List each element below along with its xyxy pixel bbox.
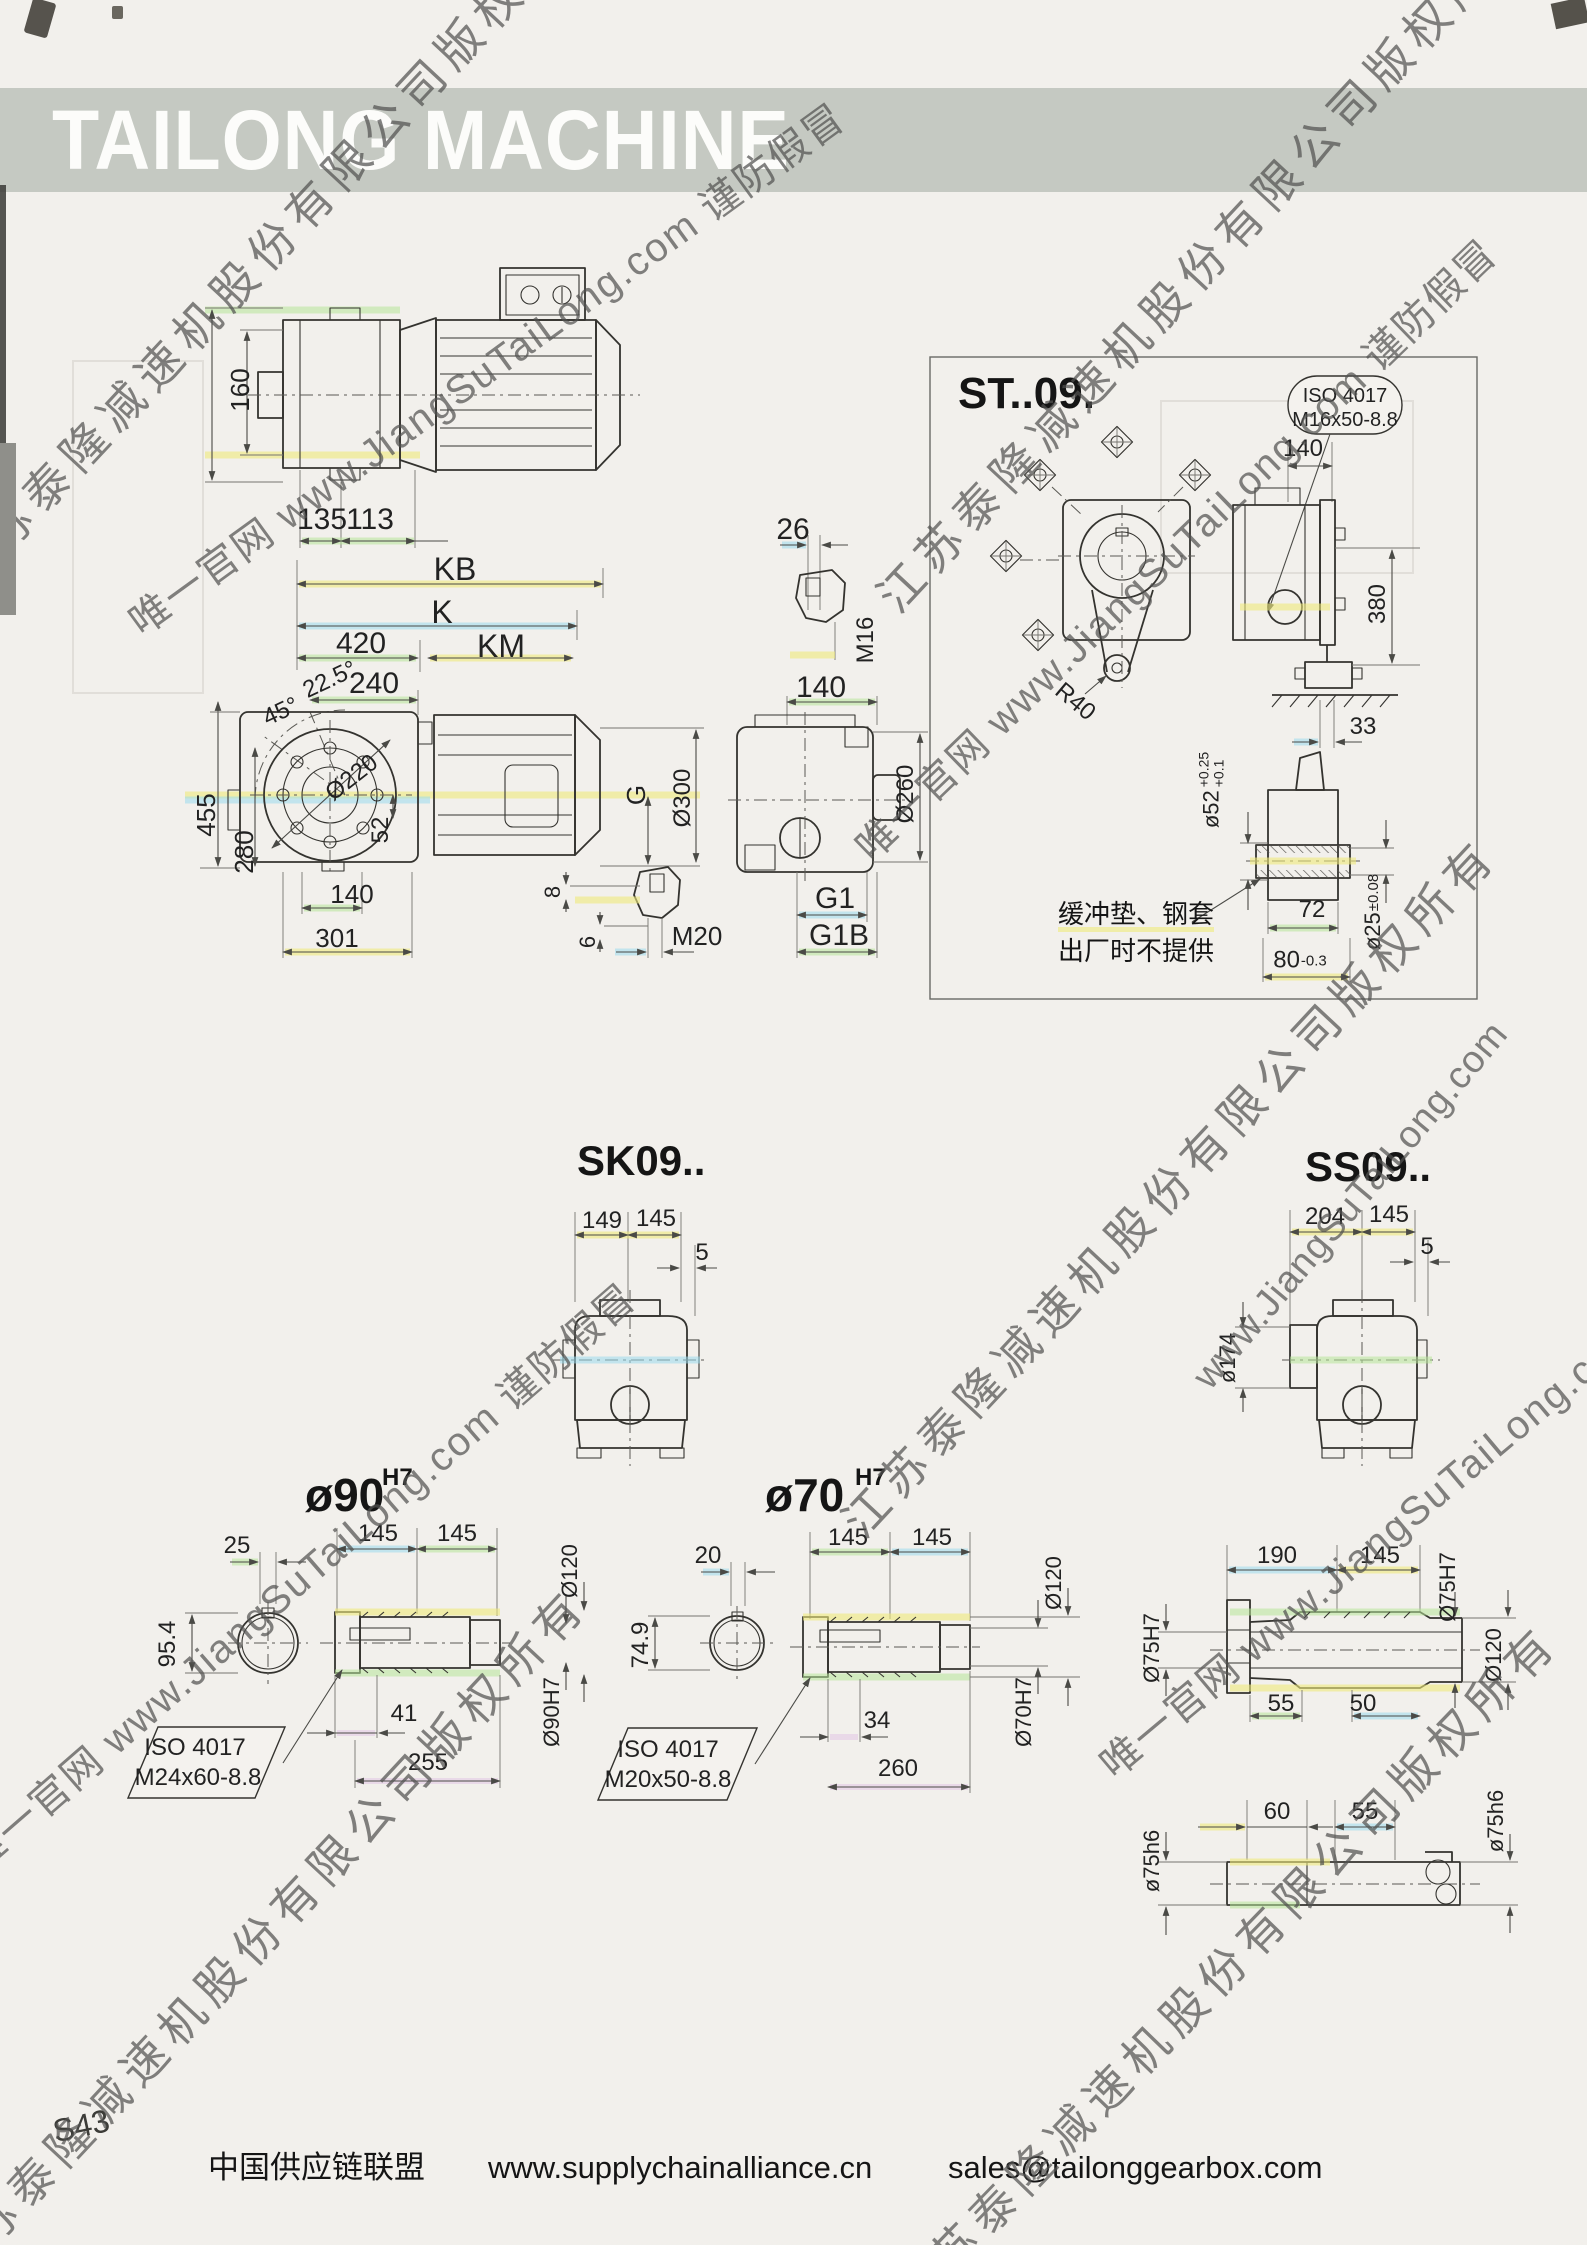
dim-240: 240 (349, 669, 399, 699)
st09-dim-380: 380 (1366, 584, 1390, 624)
bore70-iso-line1: ISO 4017 (617, 1738, 718, 1762)
dim-key-8: 8 (542, 886, 564, 898)
motor-front-silhouette (434, 715, 600, 855)
bore70-iso-line2: M20x50-8.8 (605, 1768, 732, 1792)
bore90-tol: H7 (382, 1466, 413, 1490)
dim-140-output: 140 (796, 673, 846, 703)
st09-iso-line2: M16x50-8.8 (1292, 410, 1398, 430)
dim-135: 135 (297, 505, 347, 535)
bore90-dim-41: 41 (391, 1702, 418, 1726)
bore90-keyway-dim (230, 1552, 306, 1604)
bore90-sleeve (320, 1612, 510, 1673)
bore70-dim-34: 34 (864, 1709, 891, 1733)
page-banner: TAILONG MACHINE (0, 88, 1587, 192)
sk09-dim-5: 5 (695, 1241, 708, 1265)
st09-dim-dia52: ø52+0.25+0.1 (1197, 752, 1228, 828)
ss09-dim-dia174: ø174 (1217, 1333, 1239, 1383)
dim-dia260: Ø260 (894, 765, 918, 824)
m16-bolt-detail (780, 535, 848, 660)
dim-key-6: 6 (577, 936, 599, 948)
ss09-title: SS09.. (1305, 1146, 1431, 1188)
ss09-dim-145: 145 (1369, 1203, 1409, 1227)
torque-arm-front-view (1058, 500, 1195, 694)
sleeve75-dim-dia75r: Ø75H7 (1437, 1552, 1459, 1622)
scan-mark-topleft (24, 0, 57, 39)
dim-kb: KB (434, 553, 477, 585)
output-face-drawing (690, 500, 930, 970)
left-edge-dark-strip (0, 185, 6, 453)
dim-g: G (623, 785, 649, 805)
scan-mark-topright (1551, 0, 1587, 29)
shaft75-outline (1210, 1852, 1480, 1905)
sk09-dim-right: 145 (636, 1207, 676, 1231)
dim-dia300: Ø300 (671, 769, 695, 828)
bore70-dim-145l: 145 (828, 1526, 868, 1550)
dim-160: 160 (227, 368, 253, 411)
bore90-circle (185, 1602, 308, 1684)
st09-dim-72: 72 (1299, 898, 1326, 922)
sk09-dim-left: 149 (582, 1209, 622, 1233)
dim-26: 26 (776, 515, 809, 545)
left-edge-gray-bar (0, 443, 16, 615)
st09-dim-33: 33 (1350, 715, 1377, 739)
ss09-dim-5: 5 (1420, 1235, 1433, 1259)
motor-outline (436, 268, 620, 470)
sleeve75-dim-50: 50 (1350, 1692, 1377, 1716)
dim-km: KM (477, 630, 525, 662)
dim-m20: M20 (672, 923, 723, 949)
footer-org: 中国供应链联盟 (208, 2152, 425, 2183)
st09-dim-80: 80-0.3 (1273, 946, 1327, 973)
bore70-tol: H7 (855, 1466, 886, 1490)
st09-iso-line1: ISO 4017 (1303, 386, 1388, 406)
shaft75-dim-60: 60 (1264, 1800, 1291, 1824)
torque-arm-side-view (1233, 488, 1420, 748)
dim-g1b: G1B (809, 921, 869, 951)
bore90-dim-145l: 145 (358, 1522, 398, 1546)
bore90-iso-line1: ISO 4017 (144, 1736, 245, 1760)
bore90-iso-line2: M24x60-8.8 (135, 1766, 262, 1790)
sleeve75-dim-145: 145 (1360, 1544, 1400, 1568)
bore90-dim-dia90h7: Ø90H7 (541, 1677, 563, 1747)
sleeve75-drawing (1135, 1515, 1535, 1755)
dim-g1: G1 (815, 884, 855, 914)
bore70-dim-dia120: Ø120 (1043, 1556, 1065, 1610)
front-view-drawing (180, 650, 720, 1130)
ss09-gearbox-outline (1235, 1290, 1440, 1466)
bore70-sleeve (790, 1617, 980, 1677)
dim-455: 455 (193, 793, 219, 836)
dim-m16: M16 (854, 617, 878, 664)
bore90-dim-dia120: Ø120 (559, 1544, 581, 1598)
dim-k: K (431, 596, 452, 628)
bore90-title: ø90 (305, 1472, 384, 1518)
footer-url: www.supplychainalliance.cn (488, 2152, 872, 2183)
bore70-dim-749: 74.9 (629, 1622, 653, 1669)
front-view-dims (200, 702, 704, 958)
bore70-dim-20: 20 (695, 1544, 722, 1568)
bore90-dim-954: 95.4 (156, 1621, 180, 1668)
sleeve75-dim-55: 55 (1268, 1692, 1295, 1716)
dim-420: 420 (336, 629, 386, 659)
ss09-dim-204: 204 (1305, 1205, 1345, 1229)
bore90-dim-25: 25 (224, 1534, 251, 1558)
ss09-drawing (1215, 1195, 1445, 1470)
st09-note-line1: 缓冲垫、钢套 (1058, 901, 1214, 932)
scan-mark-topleft-2 (112, 6, 123, 19)
mounting-bolt-symbols (990, 426, 1210, 650)
sk09-gearbox-outline (553, 1290, 709, 1466)
st09-dim-dia25: ø25±0.08 (1358, 874, 1384, 950)
st09-title: ST..09. (958, 372, 1095, 416)
bore70-dim-145r: 145 (912, 1526, 952, 1550)
dim-52: 52 (369, 817, 393, 844)
catalog-page: TAILONG MACHINE 江苏泰隆减速机股份有限公司版权所有 唯一官网 w… (0, 0, 1587, 2245)
bore70-circle (648, 1606, 774, 1680)
bore90-bottom-dims (307, 1675, 500, 1788)
dim-280: 280 (231, 830, 257, 873)
banner-title: TAILONG MACHINE (52, 92, 790, 189)
dim-113: 113 (346, 505, 394, 535)
dim-301: 301 (315, 925, 358, 951)
sk09-title: SK09.. (577, 1140, 705, 1182)
shaft75-dim-dia75r: ø75h6 (1485, 1790, 1507, 1852)
shaft75-dim-55: 55 (1352, 1800, 1379, 1824)
sleeve75-dim-dia120: Ø120 (1483, 1628, 1505, 1682)
bore70-dim-dia70h7: Ø70H7 (1013, 1677, 1035, 1747)
footer-email: sales@tailonggearbox.com (948, 2152, 1322, 2183)
shaft75-dim-dia75l: ø75h6 (1141, 1830, 1163, 1892)
bore90-dim-145r: 145 (437, 1522, 477, 1546)
dim-140-front: 140 (330, 881, 373, 907)
sleeve75-dim-dia75l: Ø75H7 (1141, 1613, 1163, 1683)
bore70-title: ø70 (765, 1472, 844, 1518)
bore70-dim-260: 260 (878, 1757, 918, 1781)
gearbox-face-outline (728, 696, 908, 885)
page-number: S43 (50, 2104, 112, 2147)
bore90-dim-255: 255 (408, 1751, 448, 1775)
st09-dim-140: 140 (1283, 437, 1323, 461)
sk09-drawing (545, 1195, 725, 1470)
sleeve75-dim-190: 190 (1257, 1544, 1297, 1568)
st09-note-line2: 出厂时不提供 (1058, 938, 1214, 964)
